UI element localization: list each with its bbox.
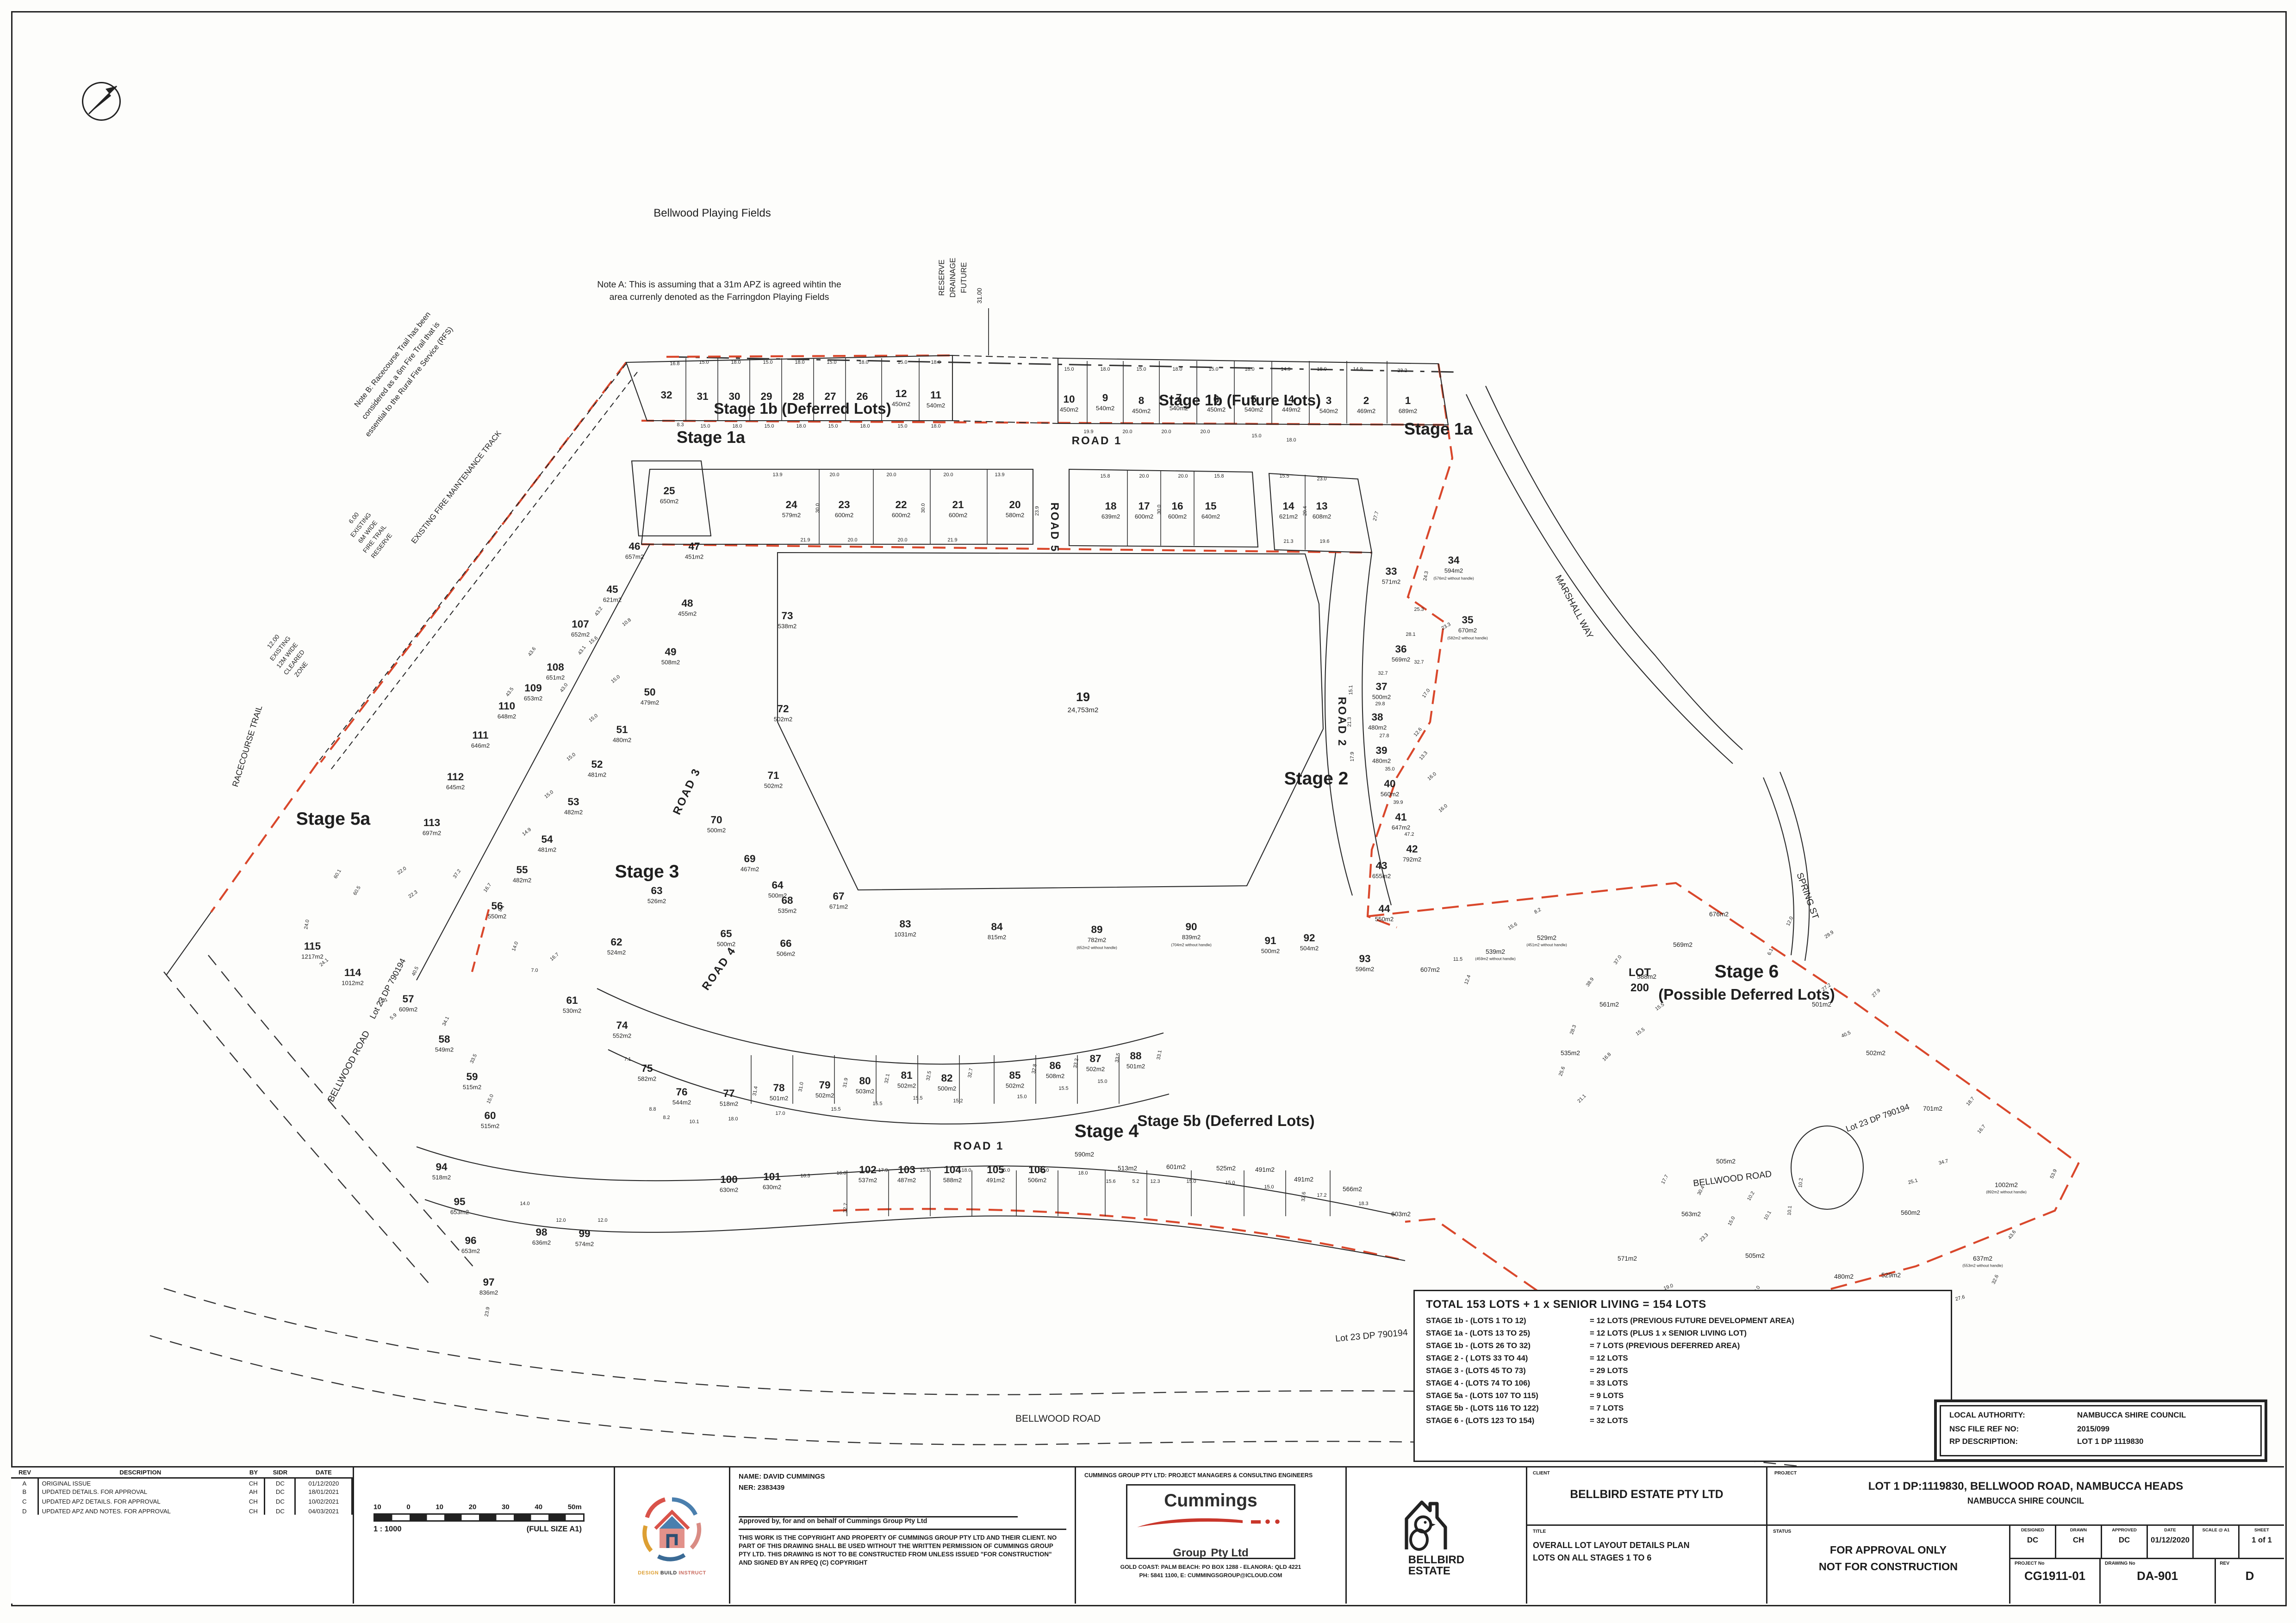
lot-area: 529m2: [1881, 1272, 1901, 1279]
lot-number: 90: [1185, 921, 1197, 933]
lot-area: 491m2: [986, 1177, 1005, 1184]
scale-note: (FULL SIZE A1): [527, 1526, 582, 1534]
lot-number: 111: [472, 729, 488, 741]
dimension-text: 13.9: [995, 472, 1005, 478]
legend-row: STAGE 3 - (LOTS 45 TO 73)= 29 LOTS: [1426, 1367, 1940, 1379]
lot-number: 93: [1359, 953, 1370, 964]
dimension-text: 21.9: [801, 537, 810, 543]
dimension-text: 24.3: [1422, 571, 1429, 581]
status-line2: NOT FOR CONSTRUCTION: [1773, 1559, 2004, 1575]
lot-area: 566m2: [1343, 1186, 1362, 1193]
dimension-text: 12.0: [556, 1218, 566, 1223]
lot-area: 561m2: [1599, 1001, 1619, 1008]
lot-area: 544m2: [672, 1099, 691, 1106]
dimension-text: 32.6: [1991, 1274, 2000, 1285]
dimension-text: 23.3: [1440, 622, 1451, 631]
dimension-text: 30.0: [815, 504, 821, 513]
lot-number: 38: [1371, 711, 1383, 723]
lot-area: 670m2: [1458, 627, 1477, 634]
dimension-text: 33.2: [1072, 1058, 1079, 1069]
dimension-text: 27.9: [1871, 988, 1881, 998]
dimension-text: 29.8: [1375, 701, 1385, 707]
dimension-text: 15.0: [610, 674, 621, 684]
legend-row: STAGE 5a - (LOTS 107 TO 115)= 9 LOTS: [1426, 1392, 1940, 1404]
lot-area: 487m2: [897, 1177, 916, 1184]
lot-number: 1: [1405, 395, 1411, 406]
north-arrow-icon: [83, 83, 120, 120]
dimension-text: 37.2: [452, 868, 462, 879]
lot-area: 651m2: [546, 674, 565, 681]
dimension-text: 34.7: [1938, 1158, 1949, 1166]
lot-number: 14: [1282, 500, 1294, 512]
lot-area: 1217m2: [301, 953, 324, 960]
road-label: ROAD 5: [1048, 503, 1061, 553]
dimension-text: 18.0: [795, 360, 805, 365]
lot-area: 508m2: [1046, 1073, 1064, 1080]
lot-number: 82: [941, 1072, 952, 1084]
lot-number: 85: [1009, 1070, 1020, 1081]
dimension-text: 20.0: [830, 472, 840, 478]
lot-area: 540m2: [1319, 408, 1338, 415]
lot-area: 513m2: [1118, 1165, 1137, 1172]
numbers-grid: DESIGNEDDC DRAWNCH APPROVEDDC DATE01/12/…: [2010, 1526, 2284, 1604]
legend-row: STAGE 1b - (LOTS 26 TO 32)= 7 LOTS (PREV…: [1426, 1341, 1940, 1354]
lot-number: 35: [1462, 614, 1473, 626]
lot-number: 8: [1139, 395, 1145, 406]
project-tag: PROJECT: [1774, 1470, 2277, 1476]
dimension-text: 18.0: [796, 423, 806, 429]
annotation: Bellwood Playing Fields: [653, 207, 771, 219]
dimension-text: 19.6: [1320, 539, 1330, 544]
dimension-text: 15.0: [588, 713, 599, 723]
lot-area: 505m2: [1745, 1252, 1765, 1259]
lot-area: 550m2: [1375, 916, 1394, 923]
dimension-text: 15.0: [701, 423, 710, 429]
dimension-text: 23.9: [1034, 506, 1040, 516]
dimension-text: 18.7: [1965, 1096, 1976, 1107]
lot-number: 67: [833, 890, 844, 902]
lot-number: 96: [465, 1235, 476, 1246]
lot-number: 42: [1406, 843, 1418, 855]
lot-area: 526m2: [647, 898, 666, 905]
stage-label: Stage 5a: [296, 809, 371, 829]
dimension-text: 10.1: [1786, 1206, 1793, 1216]
title-block: REVDESCRIPTIONBYSIDRDATEAORIGINAL ISSUEC…: [11, 1466, 2284, 1604]
dimension-text: 18.0: [1173, 367, 1182, 372]
stage-label: Stage 4: [1075, 1121, 1139, 1141]
client-cell: CLIENT BELLBIRD ESTATE PTY LTD: [1527, 1468, 1767, 1524]
note-label: DRAINAGE: [949, 258, 957, 298]
lot-area: 609m2: [399, 1006, 417, 1013]
dimension-text: 15.5: [1654, 1002, 1665, 1012]
dimension-text: 15.0: [1252, 433, 1262, 439]
site-plan: 3231302928272612450m211540m210450m29540m…: [0, 0, 2296, 1472]
dimension-text: 15.0: [485, 1094, 495, 1105]
lot-area: 482m2: [564, 809, 583, 816]
dimension-text: 15.0: [1064, 367, 1074, 372]
lot-number: 46: [628, 541, 640, 552]
lot-area: 525m2: [1216, 1165, 1236, 1172]
lot-number: 73: [781, 610, 793, 622]
dimension-text: 17.9: [1350, 752, 1355, 762]
lot-area: 491m2: [1294, 1176, 1313, 1183]
lot-number: 24: [785, 499, 797, 510]
lot-area: 480m2: [613, 737, 631, 744]
cummings-box: CUMMINGS GROUP PTY LTD: PROJECT MANAGERS…: [1076, 1468, 1347, 1604]
lot-area: 580m2: [1006, 512, 1024, 519]
lot-number: 113: [423, 817, 440, 828]
dimension-text: 16.0: [1437, 803, 1449, 814]
lot-area: 640m2: [1201, 513, 1220, 520]
lot-area: 518m2: [720, 1101, 738, 1107]
dimension-text: 17.0: [776, 1111, 785, 1116]
dimension-text: 15.0: [765, 423, 774, 429]
lot-area: 508m2: [661, 659, 680, 666]
lot-area: 689m2: [1399, 408, 1417, 415]
dimension-text: 12.0: [598, 1218, 608, 1223]
lot-number: 40: [1384, 778, 1395, 790]
title-cell: TITLE OVERALL LOT LAYOUT DETAILS PLAN LO…: [1527, 1526, 1767, 1604]
scale-ratio: 1 : 1000: [373, 1526, 402, 1534]
dimension-text: 20.0: [898, 537, 908, 543]
lot-area: 480m2: [1368, 724, 1387, 731]
lot-area: 676m2: [1709, 911, 1729, 918]
dimension-text: 27.6: [1955, 1294, 1966, 1302]
annotation: Lot 23 DP 790194: [1335, 1327, 1408, 1344]
dimension-text: 7.0: [531, 968, 538, 973]
lot-area: 482m2: [513, 877, 531, 884]
lot-number: 36: [1395, 643, 1406, 655]
cummings-logo-word1: Cummings: [1127, 1490, 1294, 1511]
lot-area: 504m2: [1300, 945, 1319, 952]
dimension-text: 35.0: [1385, 766, 1395, 772]
authority-row: RP DESCRIPTION:LOT 1 DP 1119830: [1949, 1437, 2252, 1450]
bellbird-logo-icon: [1398, 1493, 1475, 1555]
lot-number: 43: [1375, 860, 1387, 871]
lot-linework: [167, 355, 1863, 1261]
lot-area: 535m2: [1561, 1050, 1580, 1057]
lot-area: 1031m2: [894, 931, 916, 938]
dimension-text: 17.0: [1421, 688, 1431, 699]
dimension-text: 5.9: [389, 1012, 398, 1021]
lot-number: 61: [566, 995, 578, 1006]
lot-area: 582m2: [638, 1076, 656, 1082]
lot-area: 500m2: [707, 827, 726, 834]
dimension-text: 31.9: [842, 1077, 849, 1088]
road-label: ROAD 4: [700, 944, 739, 993]
dimension-text: 15.0: [566, 752, 577, 762]
lot-area: 653m2: [461, 1248, 480, 1255]
dimension-text: 14.9: [1353, 367, 1363, 372]
lot-area: 671m2: [829, 903, 848, 910]
dimension-text: 17.2: [1317, 1193, 1327, 1198]
lot-number: 21: [952, 499, 964, 510]
client-name: BELLBIRD ESTATE PTY LTD: [1533, 1488, 1761, 1501]
revision-row: BUPDATED DETAILS. FOR APPROVALAHDC18/01/…: [11, 1488, 352, 1497]
dimension-text: 15.6: [1106, 1179, 1116, 1184]
lot-area: 636m2: [532, 1239, 551, 1246]
dimension-text: 8.2: [663, 1115, 670, 1120]
note-label: RESERVE: [938, 260, 946, 296]
lot-area: 594m2: [1444, 567, 1463, 574]
lot-number: 53: [567, 796, 579, 808]
dimension-text: 33.1: [1156, 1050, 1163, 1060]
lot-number: 18: [1105, 500, 1116, 512]
dimension-text: 15.0: [763, 360, 773, 365]
cummings-logo-word2: Group: [1173, 1547, 1206, 1559]
dimension-text: 32.6: [1300, 1192, 1307, 1202]
lot-area: 506m2: [777, 951, 795, 958]
lot-area: 535m2: [778, 908, 796, 914]
dimension-text: 15.1: [1348, 685, 1354, 695]
note-label: RACECOURSE TRAIL: [230, 704, 264, 788]
scale-bar: 1001020304050m 1 : 1000 (FULL SIZE A1): [354, 1468, 615, 1604]
lot-number: 103: [898, 1164, 915, 1175]
lot-area: 481m2: [588, 771, 606, 778]
lot-number: 99: [579, 1228, 590, 1239]
dimension-text: 16.7: [549, 951, 560, 962]
stage-label: Stage 5b (Deferred Lots): [1137, 1112, 1314, 1129]
dbi-logo: DESIGN BUILD INSTRUCT: [615, 1468, 730, 1604]
dimension-text: 31.4: [752, 1086, 759, 1096]
lot-area-without-handle: (553m2 without handle): [1962, 1263, 2003, 1268]
dimension-text: 20.0: [1162, 429, 1171, 435]
local-authority-box: LOCAL AUTHORITY:NAMBUCCA SHIRE COUNCILNS…: [1934, 1399, 2267, 1462]
lot-number: 89: [1091, 924, 1102, 935]
dimension-text: 15.0: [543, 789, 554, 799]
lot-number: 57: [402, 993, 414, 1005]
status-cell: STATUS FOR APPROVAL ONLY NOT FOR CONSTRU…: [1767, 1526, 2010, 1604]
dimension-text: 47.2: [1405, 832, 1414, 837]
stage-label: Stage 1a: [677, 428, 746, 447]
lot-number: 69: [744, 853, 755, 864]
scale-bar-graphic: [373, 1513, 585, 1522]
dimension-text: 21.1: [1576, 1093, 1587, 1104]
revision-row: CUPDATED APZ DETAILS. FOR APPROVALCHDC10…: [11, 1497, 352, 1506]
lot-area: 539m2: [1486, 948, 1505, 955]
lot-area: 479m2: [641, 699, 659, 706]
lot-area: 639m2: [1101, 513, 1120, 520]
lot-number: 108: [547, 661, 564, 673]
lot-area: 502m2: [1866, 1050, 1885, 1057]
road-label: BELLWOOD ROAD: [1692, 1169, 1772, 1189]
revision-table: REVDESCRIPTIONBYSIDRDATEAORIGINAL ISSUEC…: [11, 1468, 354, 1604]
dimension-text: 10.2: [1746, 1190, 1756, 1201]
dimension-text: 16.0: [837, 1170, 846, 1176]
lot-number: 37: [1375, 681, 1387, 692]
lot-area: 502m2: [1086, 1066, 1105, 1073]
dimension-text: 18.0: [859, 360, 869, 365]
lot-number: 19: [1076, 690, 1090, 704]
dimension-text: 15.0: [1209, 367, 1219, 372]
dimension-text: 40.5: [411, 966, 420, 977]
lot-area: 648m2: [498, 713, 516, 720]
lot-area: 571m2: [1382, 578, 1400, 585]
bellbird-logo-box: BELLBIRD ESTATE: [1347, 1468, 1527, 1604]
dimension-text: 10.1: [1763, 1210, 1773, 1221]
cummings-contact: PH: 5841 1100, E: CUMMINGSGROUP@ICLOUD.C…: [1084, 1572, 1337, 1580]
lot-number: 95: [454, 1196, 465, 1207]
dimension-text: 60.1: [333, 868, 342, 879]
lot-number: 91: [1264, 935, 1276, 946]
lot-area: 647m2: [1392, 824, 1410, 831]
lot-area: 455m2: [678, 610, 697, 617]
lot-number: 88: [1130, 1050, 1141, 1062]
lot-area: 552m2: [613, 1032, 631, 1039]
lot-summary-legend: TOTAL 153 LOTS + 1 x SENIOR LIVING = 154…: [1413, 1290, 1952, 1462]
dimension-text: 20.0: [1201, 429, 1210, 435]
lot-area: 590m2: [1075, 1151, 1094, 1158]
lot-area: 506m2: [1028, 1177, 1046, 1184]
lot-area: 450m2: [1060, 406, 1078, 413]
dimension-text: 17.9: [878, 1168, 888, 1173]
lot-number: 32: [660, 389, 672, 401]
lot-area: 469m2: [1357, 408, 1375, 415]
dimension-text: 15.0: [827, 360, 837, 365]
lot-number: 45: [606, 584, 618, 595]
road-label: BELLWOOD ROAD: [326, 1029, 372, 1104]
lot-number: 22: [895, 499, 907, 510]
stage-label: Stage 6: [1715, 962, 1779, 982]
lot-area: 481m2: [538, 846, 556, 853]
lot-number: 94: [436, 1161, 448, 1173]
dimension-text: 32.8: [1031, 1063, 1038, 1074]
lot-area: 563m2: [1681, 1211, 1701, 1218]
lot-area: 653m2: [524, 695, 542, 702]
status-tag: STATUS: [1773, 1529, 2004, 1534]
lot-number: 41: [1395, 811, 1406, 823]
approved-by: DC: [2102, 1537, 2147, 1545]
lot-area: 550m2: [488, 913, 506, 920]
authority-row: NSC FILE REF NO:2015/099: [1949, 1424, 2252, 1437]
dimension-text: 32.7: [1414, 659, 1424, 665]
lot-number: 17: [1138, 500, 1150, 512]
lot-number: 15: [1205, 500, 1216, 512]
dimension-text: 43.6: [2007, 1229, 2017, 1240]
lot-area: 450m2: [892, 401, 910, 408]
lot-area: 530m2: [563, 1007, 581, 1014]
dbi-logo-words: DESIGN BUILD INSTRUCT: [638, 1570, 706, 1576]
dbi-logo-icon: [641, 1495, 703, 1567]
lot-area: 569m2: [1673, 941, 1692, 948]
lot-number: 58: [438, 1033, 450, 1045]
annotation: Lot 23 DP 790194: [1844, 1102, 1910, 1133]
lot-area: 653m2: [450, 1209, 469, 1216]
lot-area: 560m2: [1901, 1209, 1920, 1216]
lot-area: 518m2: [432, 1174, 451, 1181]
dimension-text: 29.9: [1823, 930, 1835, 940]
dimension-text: 23.0: [1317, 476, 1327, 482]
lot-number: 114: [344, 967, 361, 978]
dimension-text: 15.0: [1017, 1094, 1027, 1100]
dimension-text: 43.1: [577, 645, 587, 656]
lot-number: 62: [610, 936, 622, 948]
dimension-text: 15.0: [898, 360, 908, 365]
dimension-text: 25.1: [1908, 1178, 1918, 1186]
dimension-text: 18.0: [1245, 367, 1255, 372]
dimension-text: 18.0: [860, 423, 870, 429]
lot-number: 33: [1385, 566, 1397, 577]
lot-number: 92: [1303, 932, 1315, 944]
bellbird-logo-line2: ESTATE: [1408, 1566, 1464, 1578]
lot-number: 72: [777, 703, 789, 715]
project-cell: PROJECT LOT 1 DP:1119830, BELLWOOD ROAD,…: [1767, 1468, 2284, 1524]
cummings-logo: Cummings Group Pty Ltd: [1126, 1484, 1295, 1559]
lot-area: 596m2: [1356, 966, 1374, 973]
lot-area: 600m2: [1168, 513, 1187, 520]
road-label: ROAD 1: [1072, 435, 1122, 447]
lot-area: 600m2: [1135, 513, 1153, 520]
note-label: Note B: Racecourse Trail has been: [353, 311, 432, 409]
stage-label: Stage 1a: [1404, 419, 1473, 438]
lot-number: 98: [535, 1226, 547, 1238]
dimension-text: 60.5: [352, 885, 362, 896]
legend-row: STAGE 1a - (LOTS 13 TO 25)= 12 LOTS (PLU…: [1426, 1329, 1940, 1341]
engineer-name: NAME: DAVID CUMMINGS: [739, 1473, 1066, 1484]
lot-number: 77: [723, 1088, 734, 1099]
lot-area: 579m2: [782, 512, 801, 519]
dimension-text: 25.6: [1558, 1066, 1566, 1077]
dimension-text: 40.5: [1841, 1030, 1852, 1039]
lot-number: 64: [772, 879, 784, 891]
designed-by: DC: [2010, 1537, 2055, 1545]
dimension-text: 53.9: [2049, 1169, 2058, 1180]
dimension-text: 15.0: [828, 423, 838, 429]
dimension-text: 18.0: [1078, 1170, 1088, 1176]
dimension-text: 13.9: [773, 472, 783, 478]
lot-number: 80: [859, 1075, 871, 1087]
annotation: area currenly denoted as the Farringdon …: [610, 292, 829, 302]
lot-number: 3: [1326, 395, 1332, 406]
lot-area: 701m2: [1923, 1105, 1942, 1112]
lot-number: 59: [466, 1071, 478, 1082]
dimension-text: 25.3: [1414, 607, 1424, 612]
dimension-text: 10.8: [621, 617, 632, 627]
lot-number: 109: [524, 682, 542, 694]
lot-area-without-handle: (652m2 without handle): [1076, 945, 1117, 950]
note-label: EXISTING FIRE MAINTENANCE TRACK: [410, 429, 503, 546]
lot-number: 51: [616, 724, 628, 735]
lot-number: 107: [572, 618, 589, 630]
dimension-text: 21.3: [1284, 539, 1294, 544]
dimension-text: 43.5: [505, 686, 515, 697]
dimension-text: 15.5: [1059, 1086, 1069, 1091]
lot-number: 10: [1063, 393, 1075, 405]
lot-number: 49: [665, 646, 676, 658]
lot-area: 451m2: [685, 553, 703, 560]
dimension-text: 18.0: [1317, 367, 1327, 372]
dimension-text: 32.7: [842, 1203, 849, 1213]
dimension-text: 5.2: [1132, 1179, 1139, 1184]
dimension-text: 28.3: [1569, 1024, 1577, 1035]
lot-area: 502m2: [1006, 1082, 1024, 1089]
dimension-text: 23.2: [1398, 368, 1407, 373]
dimension-text: 16.8: [1601, 1051, 1612, 1062]
lot-number: 81: [901, 1070, 912, 1081]
lot-number: 12: [895, 388, 907, 399]
dimension-text: 10.1: [690, 1119, 699, 1125]
lot-area: 502m2: [774, 716, 792, 723]
lot-area: 836m2: [479, 1289, 498, 1296]
lot-number: 9: [1102, 392, 1108, 404]
dimension-text: 20.0: [1123, 429, 1132, 435]
dimension-text: 18.0: [931, 423, 941, 429]
dimension-text: 15.0: [1098, 1079, 1108, 1084]
lot-number: 86: [1049, 1060, 1061, 1071]
lot-area: 480m2: [1834, 1273, 1854, 1280]
dimension-text: 16.8: [670, 361, 680, 367]
lot-number: 101: [763, 1171, 781, 1182]
